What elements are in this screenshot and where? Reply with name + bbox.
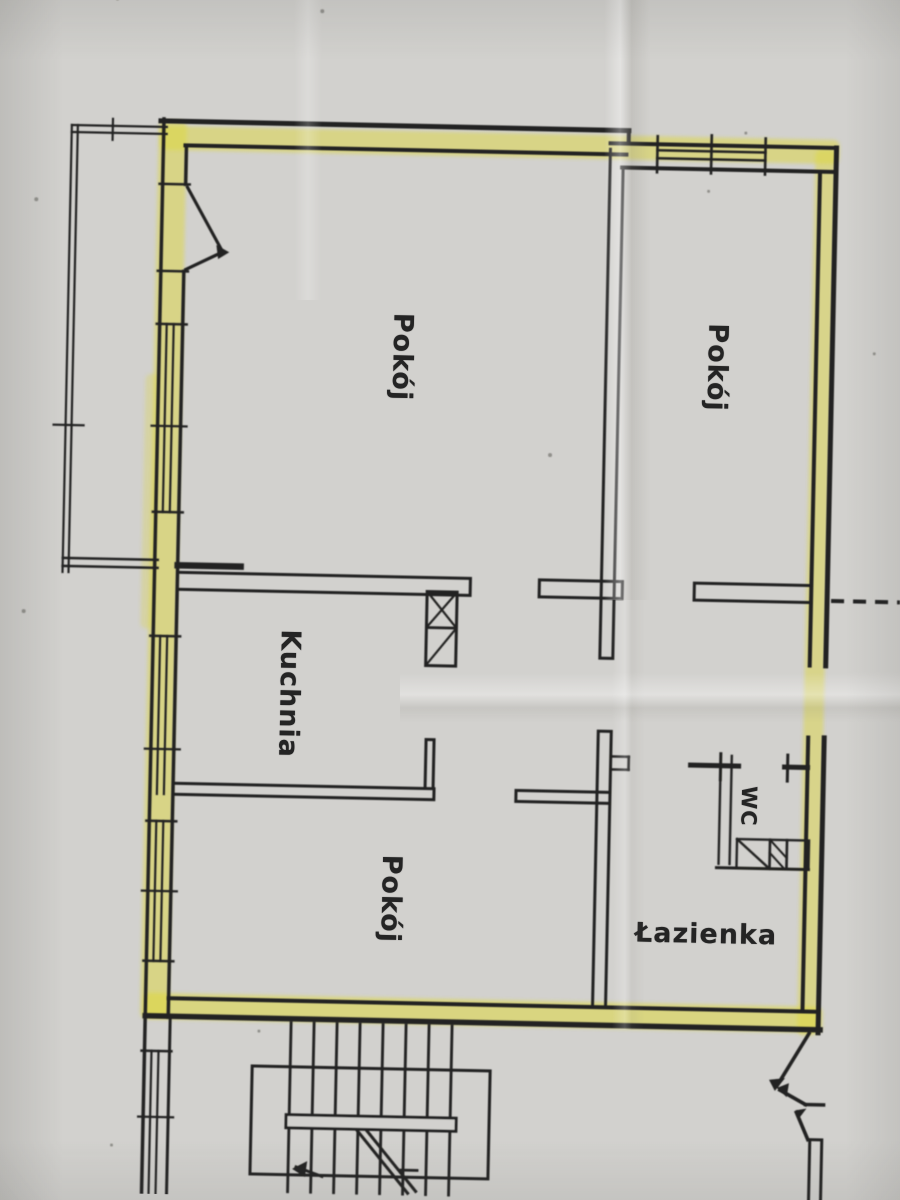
floor-plan: Pokój Pokój Kuchnia Pokój WC Łazienka: [0, 0, 900, 1200]
room-label-top-right: Pokój: [701, 323, 734, 412]
kitchen-label: Kuchnia: [272, 629, 306, 758]
plan-drawing: [0, 0, 900, 1200]
wc-label: WC: [736, 786, 761, 827]
floor-plan-scan: Pokój Pokój Kuchnia Pokój WC Łazienka: [0, 0, 900, 1200]
room-label-top-left: Pokój: [386, 312, 419, 401]
bathroom-label: Łazienka: [635, 917, 778, 951]
room-label-bottom: Pokój: [374, 854, 407, 943]
